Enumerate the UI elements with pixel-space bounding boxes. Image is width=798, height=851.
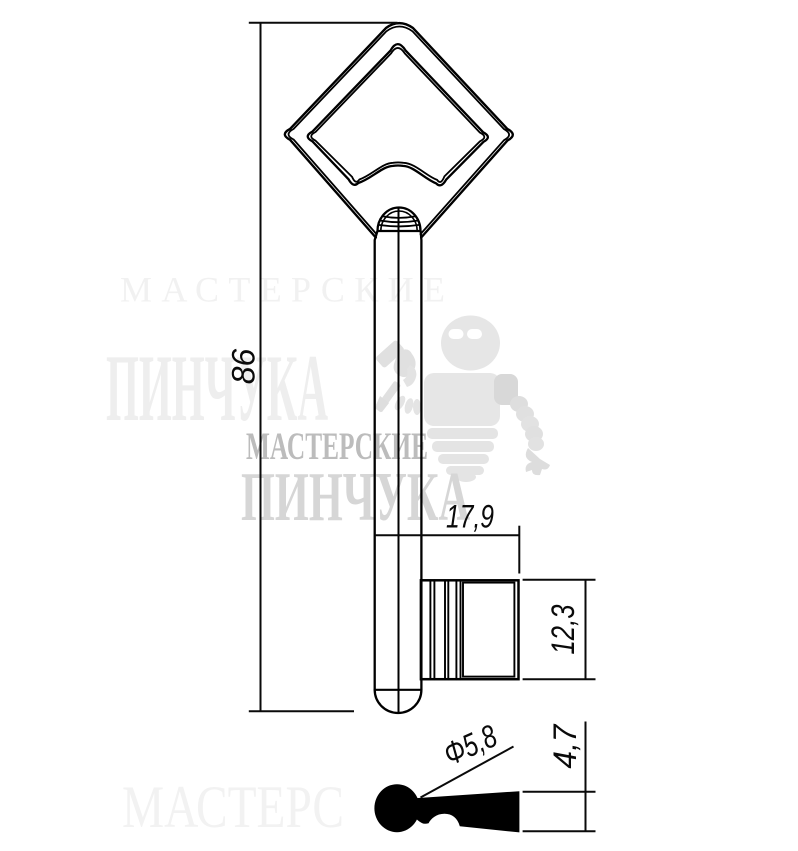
svg-text:МАСТЕРС: МАСТЕРС	[122, 774, 344, 840]
svg-text:86: 86	[226, 349, 262, 385]
svg-text:ПИНЧУКА: ПИНЧУКА	[241, 459, 470, 536]
svg-text:12,3: 12,3	[545, 604, 581, 654]
svg-text:17,9: 17,9	[446, 499, 494, 535]
svg-text:4,7: 4,7	[547, 723, 583, 768]
